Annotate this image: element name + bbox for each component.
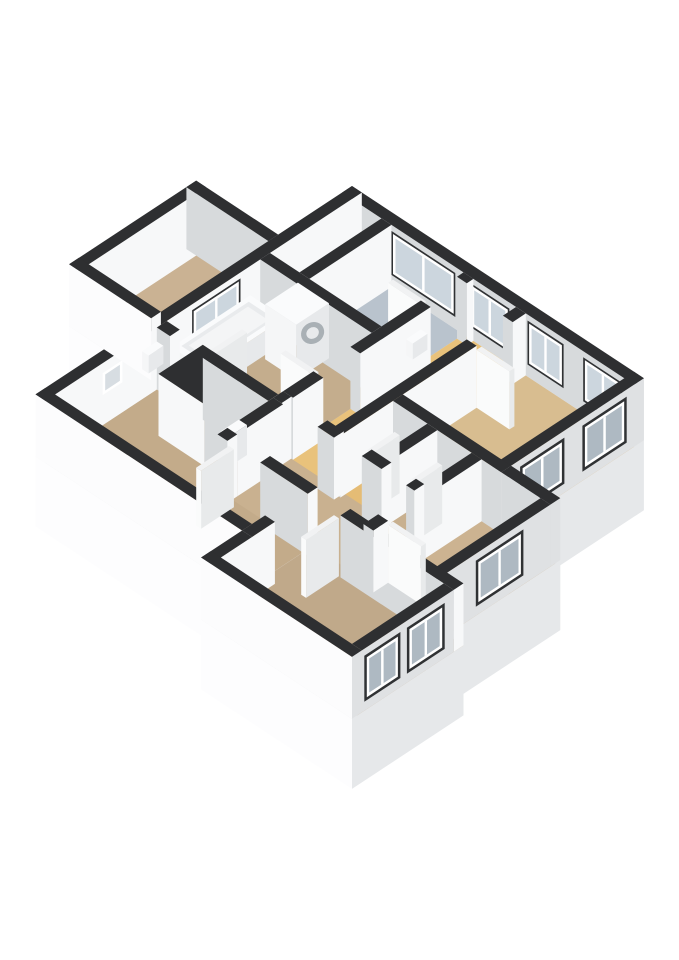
floor-plan-3d	[0, 0, 679, 960]
wall-east-bottom-window-0-mullion	[425, 621, 427, 657]
wall-hall-west-2-side-y	[350, 347, 360, 416]
wall-storage-west-2-side-x	[373, 521, 388, 593]
wall-east-storage-window-0-mullion	[498, 550, 500, 586]
wall-step-north-side-x	[550, 498, 560, 566]
living-room-door-side-y	[196, 468, 201, 529]
wall-east-bedroom-window-0-mullion	[603, 416, 606, 452]
wall-corridor-south-3-side-x	[454, 583, 464, 652]
bottom-room-door-side-y	[301, 537, 306, 598]
wall-hall-west-1-side-y	[457, 277, 467, 346]
wall-east-bottom-window-1-mullion	[381, 649, 384, 685]
wall-north-window-2-mullion	[544, 337, 546, 373]
wall-storage-west-2-side-y	[364, 524, 374, 593]
wall-north-window-1-mullion	[489, 300, 492, 336]
storage-b-door-side-x	[421, 543, 426, 604]
bedroom-right-door-side-x	[509, 368, 514, 429]
wall-south-bottom-side-x	[352, 650, 362, 719]
wall-north-window-0-mullion	[422, 256, 425, 292]
wall-hall-west-1-side-x	[467, 279, 474, 345]
floor-plan-page	[0, 0, 679, 960]
wall-corridor-north-2-side-y	[318, 427, 334, 500]
wall-corridor-north-2-side-x	[334, 431, 344, 499]
wall-hall-east-1-side-x	[513, 313, 526, 384]
